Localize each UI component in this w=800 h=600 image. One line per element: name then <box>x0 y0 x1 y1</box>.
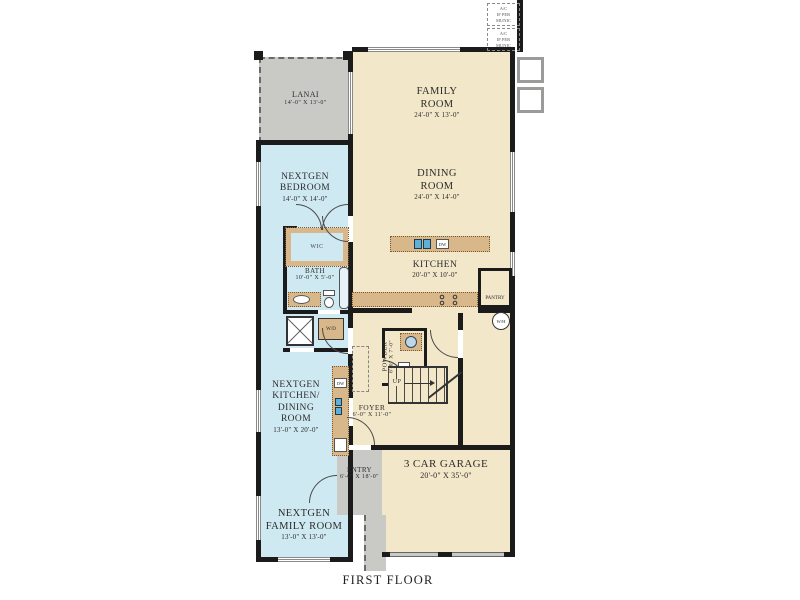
dining-name-2: ROOM <box>362 181 512 194</box>
wall-kitchen-hall-1 <box>352 308 412 313</box>
bath-name: BATH <box>285 267 345 275</box>
water-heater-label: W/H <box>497 319 506 324</box>
wic-label: WIC <box>310 244 323 250</box>
dishwasher-box: DW <box>436 239 449 249</box>
room-label-nextgen-family: NEXTGEN FAMILY ROOM 13'-0" X 13'-0" <box>261 508 347 542</box>
nextgen-kitchen-name-2: KITCHEN/ <box>259 391 333 402</box>
pantry-text: PANTRY <box>485 296 504 301</box>
foyer-dims: 6'-0" X 11'-0" <box>340 412 404 419</box>
window-nextgen-family-bottom <box>278 557 330 562</box>
room-label-family: FAMILY ROOM 24'-0" X 13'-0" <box>362 86 512 120</box>
opening-bath-laundry <box>318 310 340 314</box>
entry-dims: 6'-0" X 18'-0" <box>337 474 382 481</box>
entry-walk <box>364 515 386 571</box>
water-heater: W/H <box>492 312 510 330</box>
nextgen-dishwasher-label: DW <box>337 381 345 386</box>
nextgen-kitchen-dims: 13'-0" X 20'-0" <box>259 426 333 434</box>
up-arrow-head <box>430 380 435 386</box>
family-name-2: ROOM <box>362 99 512 112</box>
entry-room <box>337 449 382 515</box>
nextgen-kitchen-name-1: NEXTGEN <box>259 380 333 391</box>
nextgen-family-name-1: NEXTGEN <box>261 508 347 521</box>
nextgen-family-name-2: FAMILY ROOM <box>261 521 347 534</box>
lanai-dims: 14'-0" X 13'-0" <box>259 100 352 107</box>
nextgen-dishwasher-box: DW <box>334 378 347 388</box>
pantry-label: PANTRY <box>478 296 512 302</box>
nextgen-kitchen-name-4: ROOM <box>259 414 333 425</box>
room-label-dining: DINING ROOM 24'-0" X 14'-0" <box>362 168 512 202</box>
lanai-name: LANAI <box>259 90 352 100</box>
kitchen-name: KITCHEN <box>375 260 495 271</box>
dining-name-1: DINING <box>362 168 512 181</box>
wall-lanai-bedroom <box>256 140 352 145</box>
kitchen-dims: 20'-0" X 10'-0" <box>375 271 495 279</box>
bath-toilet-tank <box>323 290 335 296</box>
room-label-kitchen: KITCHEN 20'-0" X 10'-0" <box>375 260 495 280</box>
ac-note-2-line3: MUNIC <box>488 43 519 49</box>
room-label-powder: POWDER 6'-0" X 7'-0" <box>383 327 400 387</box>
ac-pad-1 <box>517 57 544 83</box>
stove-icon <box>436 293 462 306</box>
powder-dims: 6'-0" X 7'-0" <box>389 327 395 387</box>
bath-sink <box>293 295 310 304</box>
room-label-foyer: FOYER 6'-0" X 11'-0" <box>340 403 404 419</box>
foyer-name: FOYER <box>340 403 404 412</box>
dining-dims: 24'-0" X 14'-0" <box>362 193 512 201</box>
opening-garage-door <box>458 330 463 358</box>
window-family-top <box>368 47 460 52</box>
nextgen-fridge <box>334 438 347 452</box>
bedroom-name-1: NEXTGEN <box>261 172 349 183</box>
room-label-bath: BATH 10'-0" X 5'-0" <box>285 267 345 283</box>
opening-laundry-hall <box>290 348 314 352</box>
wall-lanai-corner-stub <box>254 51 263 60</box>
room-label-nextgen-kitchen: NEXTGEN KITCHEN/ DINING ROOM 13'-0" X 20… <box>259 380 333 434</box>
bath-dims: 10'-0" X 5'-0" <box>285 275 345 282</box>
ac-pad-2 <box>517 87 544 113</box>
room-label-nextgen-bedroom: NEXTGEN BEDROOM 14'-0" X 14'-0" <box>261 172 349 203</box>
foyer-closet-dashed <box>352 346 369 392</box>
room-label-garage: 3 CAR GARAGE 20'-0" X 35'-0" <box>385 458 507 481</box>
garage-door-1 <box>390 552 438 557</box>
family-dims: 24'-0" X 13'-0" <box>362 111 512 119</box>
powder-sink <box>405 336 417 348</box>
plan-title: FIRST FLOOR <box>288 573 488 588</box>
family-name-1: FAMILY <box>362 86 512 99</box>
garage-door-2 <box>452 552 504 557</box>
nextgen-kitchen-name-3: DINING <box>259 403 333 414</box>
room-label-lanai: LANAI 14'-0" X 13'-0" <box>259 90 352 107</box>
kitchen-sink-right <box>423 239 431 249</box>
garage-name: 3 CAR GARAGE <box>385 458 507 471</box>
bedroom-dims: 14'-0" X 14'-0" <box>261 195 349 203</box>
ac-note-1-line3: MUNIC <box>488 18 519 24</box>
ac-note-2: A/C IF PER MUNIC <box>487 28 520 51</box>
wall-lanai-stub-right <box>343 51 352 60</box>
shower-stall <box>286 316 314 346</box>
garage-dims: 20'-0" X 35'-0" <box>385 471 507 481</box>
bath-toilet-bowl <box>324 297 334 308</box>
kitchen-sink-left <box>414 239 422 249</box>
dishwasher-label: DW <box>439 242 447 247</box>
up-arrow-line <box>404 383 430 384</box>
floor-plan: DW PANTRY W/H WIC W/D UP DW A/C IF PER <box>0 0 800 600</box>
bedroom-name-2: BEDROOM <box>261 183 349 194</box>
entry-name: ENTRY <box>337 466 382 474</box>
plan-title-text: FIRST FLOOR <box>342 573 433 587</box>
nextgen-family-dims: 13'-0" X 13'-0" <box>261 533 347 541</box>
ac-note-1: A/C IF PER MUNIC <box>487 3 520 26</box>
opening-bedroom <box>348 216 353 242</box>
room-label-entry: ENTRY 6'-0" X 18'-0" <box>337 466 382 482</box>
